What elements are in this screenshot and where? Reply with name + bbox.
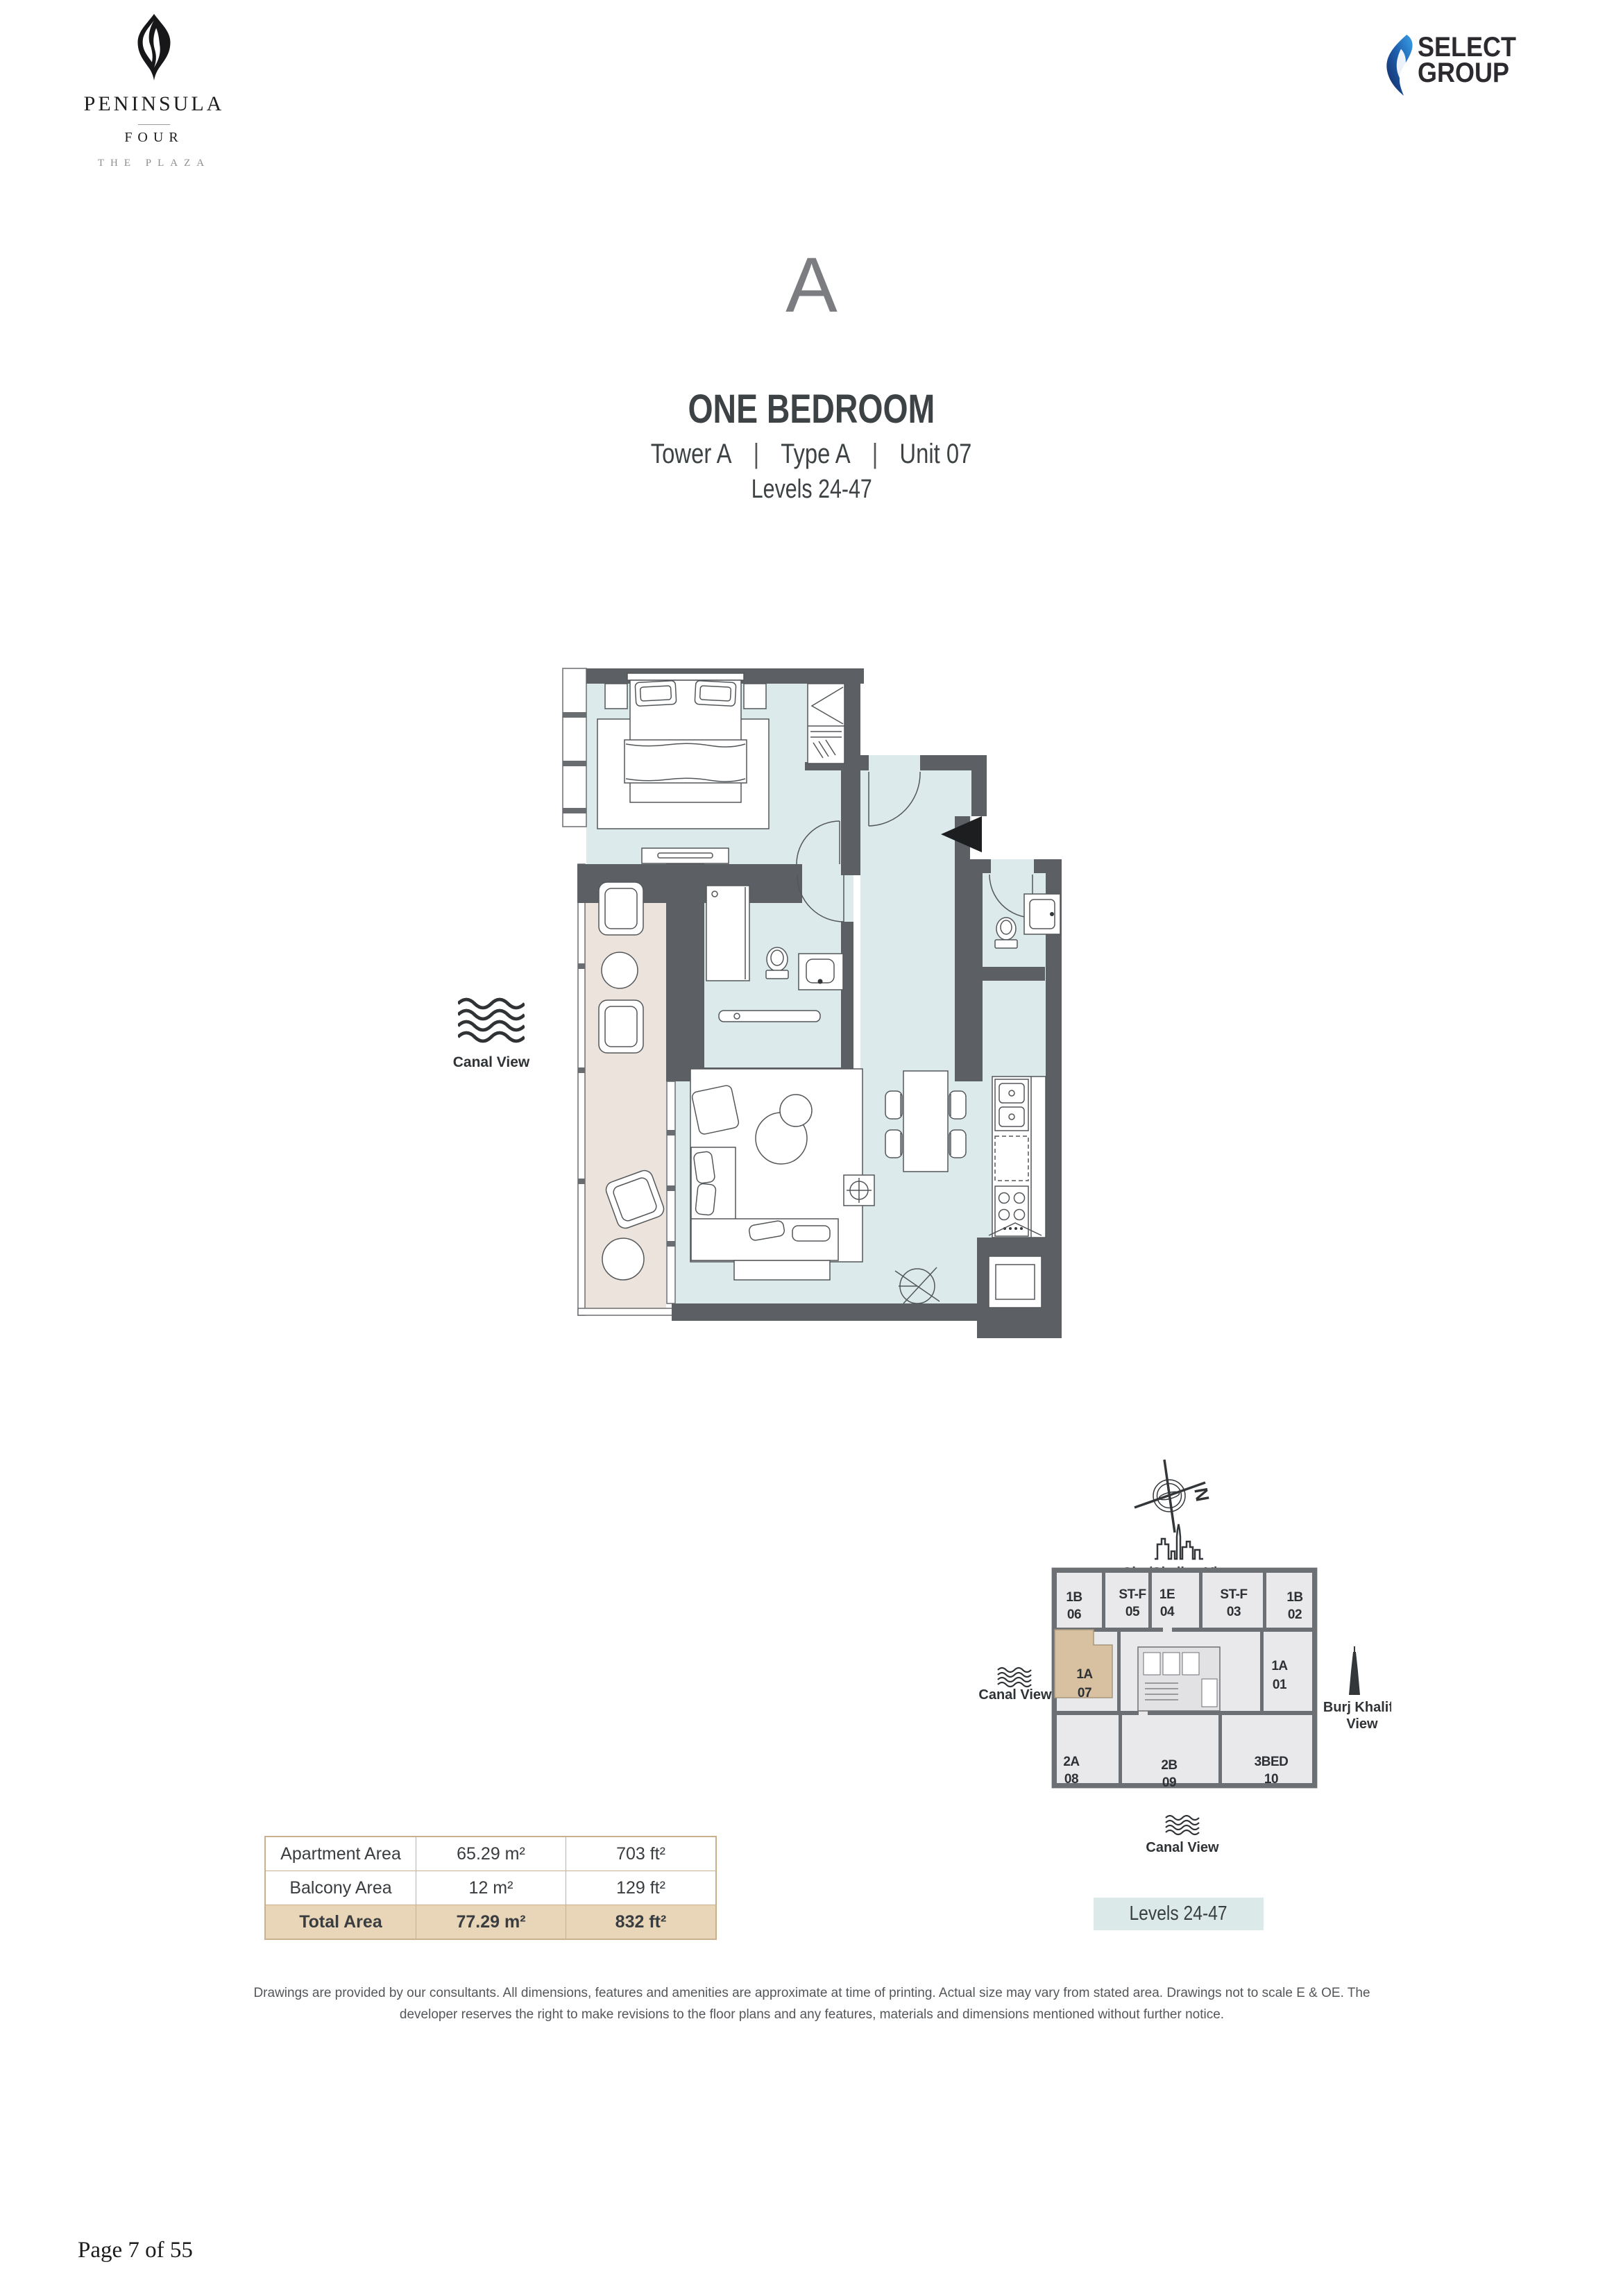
select-group-logo: SELECT GROUP [1385,35,1527,96]
area-metric: 65.29 m² [416,1837,566,1871]
tower-label: Tower A [651,439,732,470]
table-row: Apartment Area 65.29 m² 703 ft² [266,1837,715,1871]
brand-sub: FOUR [76,130,232,146]
separator: | [872,439,878,470]
keyplan-unit-label: 10 [1264,1772,1278,1787]
keyplan-unit-label: 09 [1162,1775,1176,1790]
unit-type-title: ONE BEDROOM [688,386,935,432]
toilet [766,947,788,979]
powder-sink [1024,894,1060,934]
keyplan-unit-label: 1B [1066,1590,1082,1605]
north-label: N [1190,1486,1213,1503]
waves-icon [1166,1816,1199,1834]
canal-view-bottom-label: Canal View [1146,1840,1219,1855]
area-imperial: 832 ft² [566,1905,715,1939]
table-row: Balcony Area 12 m² 129 ft² [266,1871,715,1905]
skyline-icon [1155,1524,1203,1559]
waves-icon [458,997,525,1047]
canal-view-left-label: Canal View [978,1687,1052,1703]
keyplan-unit-label: ST-F [1119,1587,1146,1602]
keyplan-unit-label: 2A [1063,1755,1080,1769]
area-metric: 77.29 m² [416,1905,566,1939]
lounge-chair [691,1085,740,1136]
keyplan-unit-label: ST-F [1220,1587,1247,1602]
keyplan-unit-label: 05 [1125,1605,1140,1619]
keyplan-unit-label: 02 [1288,1607,1302,1622]
unit-meta: Tower A | Type A | Unit 07 [0,439,1623,470]
area-label: Balcony Area [266,1871,416,1905]
levels-label: Levels 24-47 [751,475,872,505]
flame-icon [1385,35,1414,96]
shower [706,886,749,981]
separator: | [754,439,760,470]
powder-toilet [995,918,1017,948]
developer-line2: GROUP [1418,60,1516,86]
keyplan-unit-label: 06 [1067,1607,1081,1622]
brand-name: PENINSULA [76,92,232,116]
brand-divider [138,124,170,125]
canal-view-label-plan: Canal View [450,997,533,1071]
unit-label: Unit 07 [900,439,972,470]
keyplan-unit-label: 1A [1271,1659,1288,1673]
floor-plan [451,651,1096,1342]
page-number: Page 7 of 55 [78,2238,193,2263]
keyplan-unit-label: 07 [1078,1686,1091,1700]
balcony-round-chair [602,1238,644,1280]
table-row-total: Total Area 77.29 m² 832 ft² [266,1905,715,1939]
developer-line1: SELECT [1418,35,1516,60]
brand-tagline: THE PLAZA [76,158,232,169]
keyplan-plate: 1B 06 ST-F 05 1E 04 ST-F 03 1B 02 1A 07 … [1052,1568,1317,1790]
area-table: Apartment Area 65.29 m² 703 ft² Balcony … [264,1836,717,1940]
core [1138,1647,1220,1711]
area-imperial: 129 ft² [566,1871,715,1905]
burj-khalifa-view-label2: View [1346,1716,1378,1732]
nightstand-left [605,684,627,709]
side-table [844,1175,874,1206]
keyplan-unit-label: 1A [1076,1667,1093,1682]
stove [995,1186,1028,1236]
balcony-slider-window [667,1081,675,1303]
area-label: Apartment Area [266,1837,416,1871]
burj-khalifa-view-label: Burj Khalifa [1323,1700,1391,1715]
keyplan-unit-label: 04 [1160,1605,1175,1619]
nightstand-right [744,684,766,709]
area-imperial: 703 ft² [566,1837,715,1871]
peninsula-logo: PENINSULA FOUR THE PLAZA [76,14,232,169]
coffee-table-small [780,1095,812,1126]
developer-name: SELECT GROUP [1418,35,1516,86]
levels-badge: Levels 24-47 [1094,1898,1264,1930]
burj-khalifa-icon [1349,1646,1360,1695]
balcony-table [602,952,638,988]
keyplan-unit-label: 1E [1159,1587,1175,1602]
vanity-sink [799,954,843,990]
bed [624,673,747,802]
canal-view-text: Canal View [450,1054,533,1071]
peninsula-pin-icon [137,14,171,81]
keyplan-unit-label: 03 [1227,1605,1241,1619]
keyplan-unit-label: 08 [1064,1772,1078,1787]
kitchen [989,1077,1046,1308]
levels-badge-text: Levels 24-47 [1130,1898,1227,1930]
tv-console [734,1260,830,1280]
keyplan-unit-label: 01 [1273,1678,1287,1692]
keyplan-unit-label: 2B [1161,1758,1177,1773]
waves-icon [998,1668,1031,1687]
plan-letter: A [0,240,1623,330]
key-plan: N City/Skyline View [961,1451,1391,1867]
keyplan-unit-label: 3BED [1255,1755,1289,1769]
bath-bench [719,1011,820,1022]
wardrobe [808,684,844,763]
keyplan-unit-label: 1B [1286,1590,1302,1605]
area-metric: 12 m² [416,1871,566,1905]
disclaimer: Drawings are provided by our consultants… [236,1982,1388,2025]
type-label: Type A [781,439,851,470]
area-label: Total Area [266,1905,416,1939]
bedroom-sideboard [642,848,729,863]
